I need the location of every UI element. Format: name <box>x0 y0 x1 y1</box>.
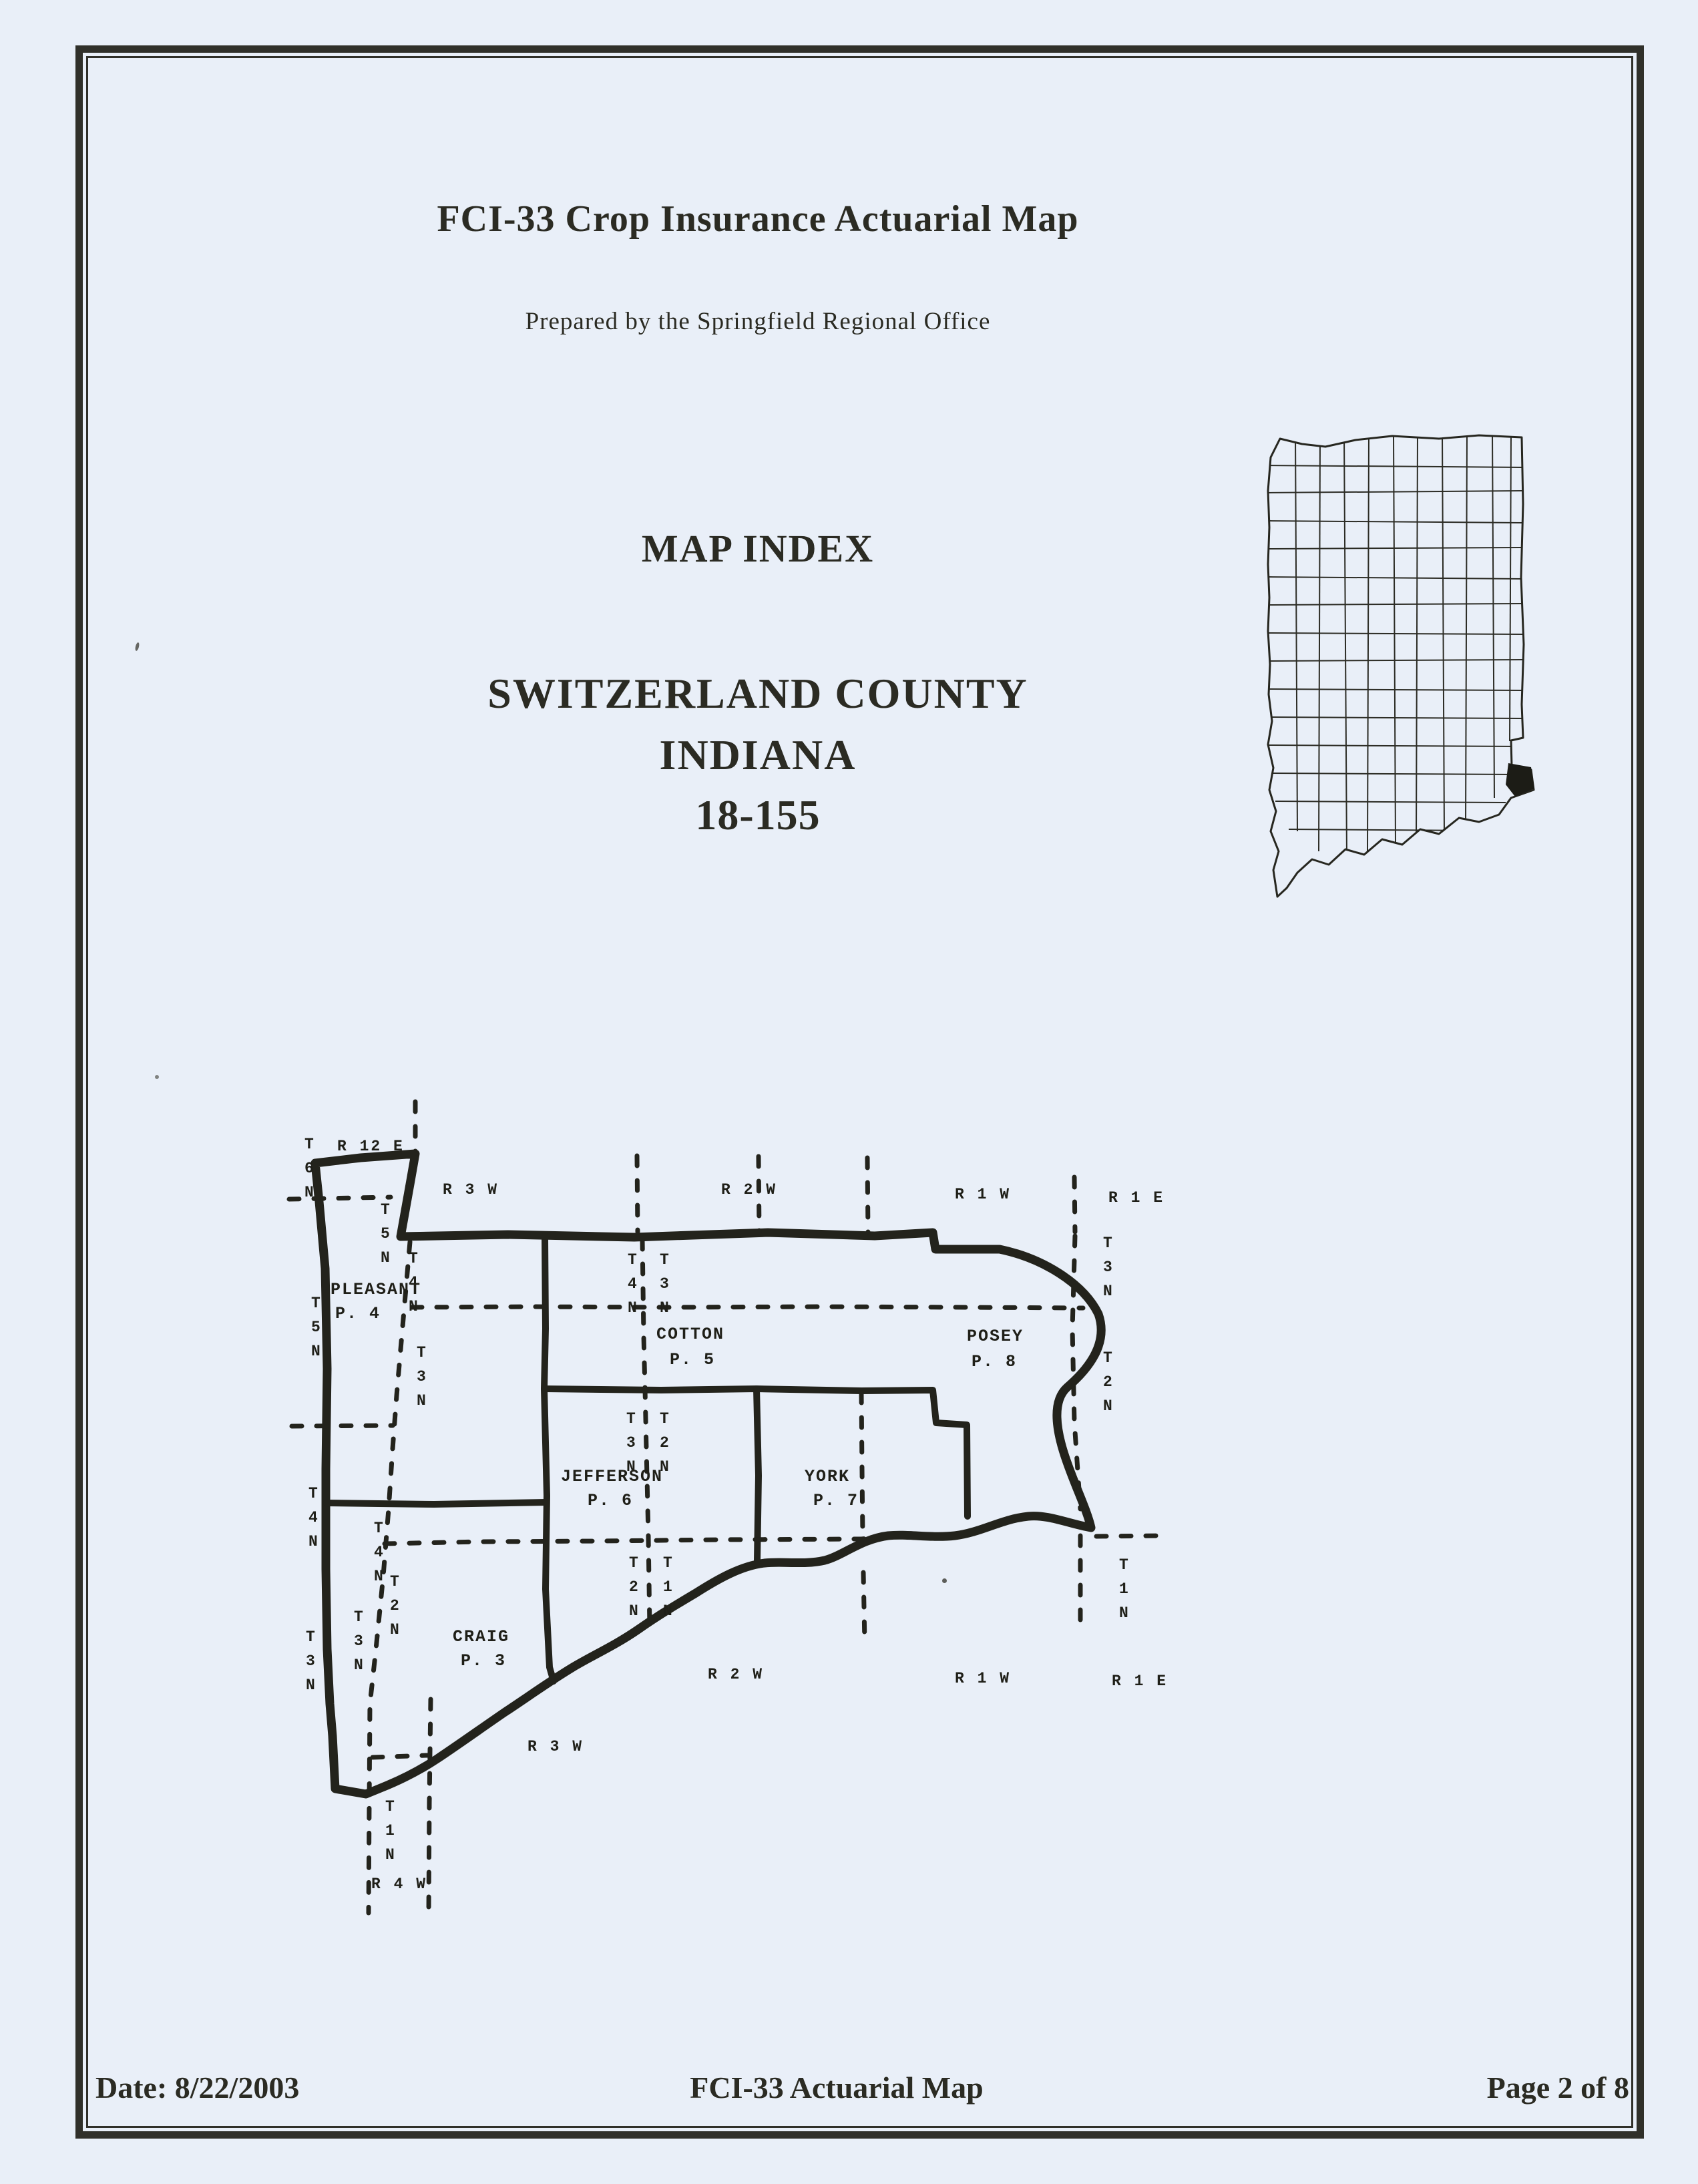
range-line-r2w-r1w <box>861 1393 865 1643</box>
footer-title: FCI-33 Actuarial Map <box>75 2070 1598 2105</box>
range-label: R 1 E <box>1112 1673 1168 1690</box>
range-line-r1w-r1e-top <box>867 1158 868 1232</box>
document-title: FCI-33 Crop Insurance Actuarial Map <box>87 198 1429 240</box>
range-label: R 1 E <box>1108 1189 1164 1207</box>
scan-artifact <box>155 1075 159 1079</box>
township-label: T2N <box>660 1410 671 1476</box>
township-label: T4N <box>628 1251 639 1317</box>
township-name-posey: POSEY <box>967 1327 1024 1346</box>
township-label: T5N <box>311 1295 323 1360</box>
county-grid-line <box>1510 434 1511 741</box>
township-name-jefferson: JEFFERSON <box>561 1467 663 1486</box>
township-line-t5n-t4n-west <box>292 1426 393 1426</box>
township-name-york: YORK <box>805 1467 850 1486</box>
county-grid-line <box>1319 434 1320 851</box>
county-grid-line <box>1492 434 1494 798</box>
township-page-york: P. 7 <box>813 1491 859 1510</box>
township-label: T2N <box>629 1554 640 1620</box>
county-grid-line <box>1265 660 1524 661</box>
county-grid-line <box>1265 773 1519 775</box>
range-line-r3w-r2w <box>642 1239 650 1628</box>
state-name: INDIANA <box>87 730 1429 780</box>
county-grid-line <box>1265 521 1524 523</box>
township-label: T3N <box>354 1608 365 1674</box>
county-grid-line <box>1265 465 1524 467</box>
county-grid-line <box>1265 717 1524 718</box>
county-grid-line <box>1344 434 1347 858</box>
range-line-r3w-r2w-top <box>637 1156 638 1232</box>
township-page-posey: P. 8 <box>972 1352 1017 1371</box>
range-label: R 3 W <box>443 1181 499 1198</box>
range-label: R 1 W <box>955 1670 1011 1687</box>
township-page-jefferson: P. 6 <box>588 1491 633 1510</box>
county-grid-line <box>1265 633 1524 634</box>
county-grid-line <box>1367 434 1369 851</box>
township-label: T1N <box>1119 1556 1130 1622</box>
township-line-t4n-t3n <box>412 1307 1083 1308</box>
range-label: R 2 W <box>721 1181 777 1198</box>
range-label: R 2 W <box>708 1666 764 1683</box>
township-name-pleasant: PLEASANT <box>331 1280 421 1299</box>
county-boundary-outline <box>315 1154 1101 1794</box>
pleasant-craig-boundary <box>327 1502 546 1504</box>
township-name-craig: CRAIG <box>453 1627 509 1647</box>
township-label: T4N <box>374 1520 385 1585</box>
county-grid-line <box>1466 434 1467 825</box>
indiana-county-locator-map <box>1239 424 1539 918</box>
county-grid-line <box>1394 434 1396 845</box>
township-label: T4N <box>308 1485 320 1550</box>
township-label: T3N <box>660 1251 671 1317</box>
county-code: 18-155 <box>87 791 1429 840</box>
footer-page-number: Page 2 of 8 <box>1429 2070 1629 2105</box>
township-label: T3N <box>626 1410 638 1476</box>
range-line-r1w-r1e <box>1072 1177 1080 1624</box>
township-label: T3N <box>1103 1235 1114 1300</box>
township-label: T3N <box>417 1344 428 1409</box>
range-label: R 4 W <box>371 1876 427 1893</box>
scanned-document-page: FCI-33 Crop Insurance Actuarial Map Prep… <box>0 0 1698 2184</box>
township-label: T6N <box>304 1136 316 1201</box>
county-grid-line <box>1265 491 1524 493</box>
township-name-cotton: COTTON <box>656 1325 724 1344</box>
county-grid-line <box>1275 801 1506 803</box>
township-label: T3N <box>306 1628 317 1694</box>
township-label: T2N <box>390 1573 401 1639</box>
township-line-t1n-east <box>1096 1536 1160 1536</box>
cotton-jefferson-west-boundary <box>544 1236 554 1681</box>
township-label: T2N <box>1103 1349 1114 1415</box>
county-grid-line <box>1265 745 1524 746</box>
range-label: R 12 E <box>337 1138 405 1155</box>
county-grid-line <box>1265 689 1524 690</box>
range-line-r4w-east <box>429 1699 431 1913</box>
township-page-cotton: P. 5 <box>670 1350 715 1369</box>
township-page-craig: P. 3 <box>461 1651 506 1671</box>
township-page-pleasant: P. 4 <box>335 1304 381 1323</box>
county-name: SWITZERLAND COUNTY <box>87 669 1429 718</box>
switzerland-county-index-map: R 12 E R 3 W R 2 W R 1 W R 1 E R 4 W R 3… <box>254 1062 1202 1943</box>
jefferson-york-boundary <box>757 1389 759 1561</box>
county-grid-line <box>1265 548 1524 549</box>
document-subtitle: Prepared by the Springfield Regional Off… <box>87 307 1429 336</box>
township-label: T5N <box>381 1201 392 1267</box>
township-line-t2n-t1n <box>385 1538 876 1544</box>
county-grid-line <box>1265 604 1524 605</box>
township-label: T1N <box>385 1798 397 1864</box>
township-label: T1N <box>663 1554 674 1620</box>
map-index-heading: MAP INDEX <box>87 526 1429 571</box>
range-label: R 3 W <box>527 1738 584 1755</box>
range-label: R 1 W <box>955 1186 1011 1203</box>
township-line-t1n-west <box>373 1755 427 1757</box>
county-grid-line <box>1416 434 1418 838</box>
